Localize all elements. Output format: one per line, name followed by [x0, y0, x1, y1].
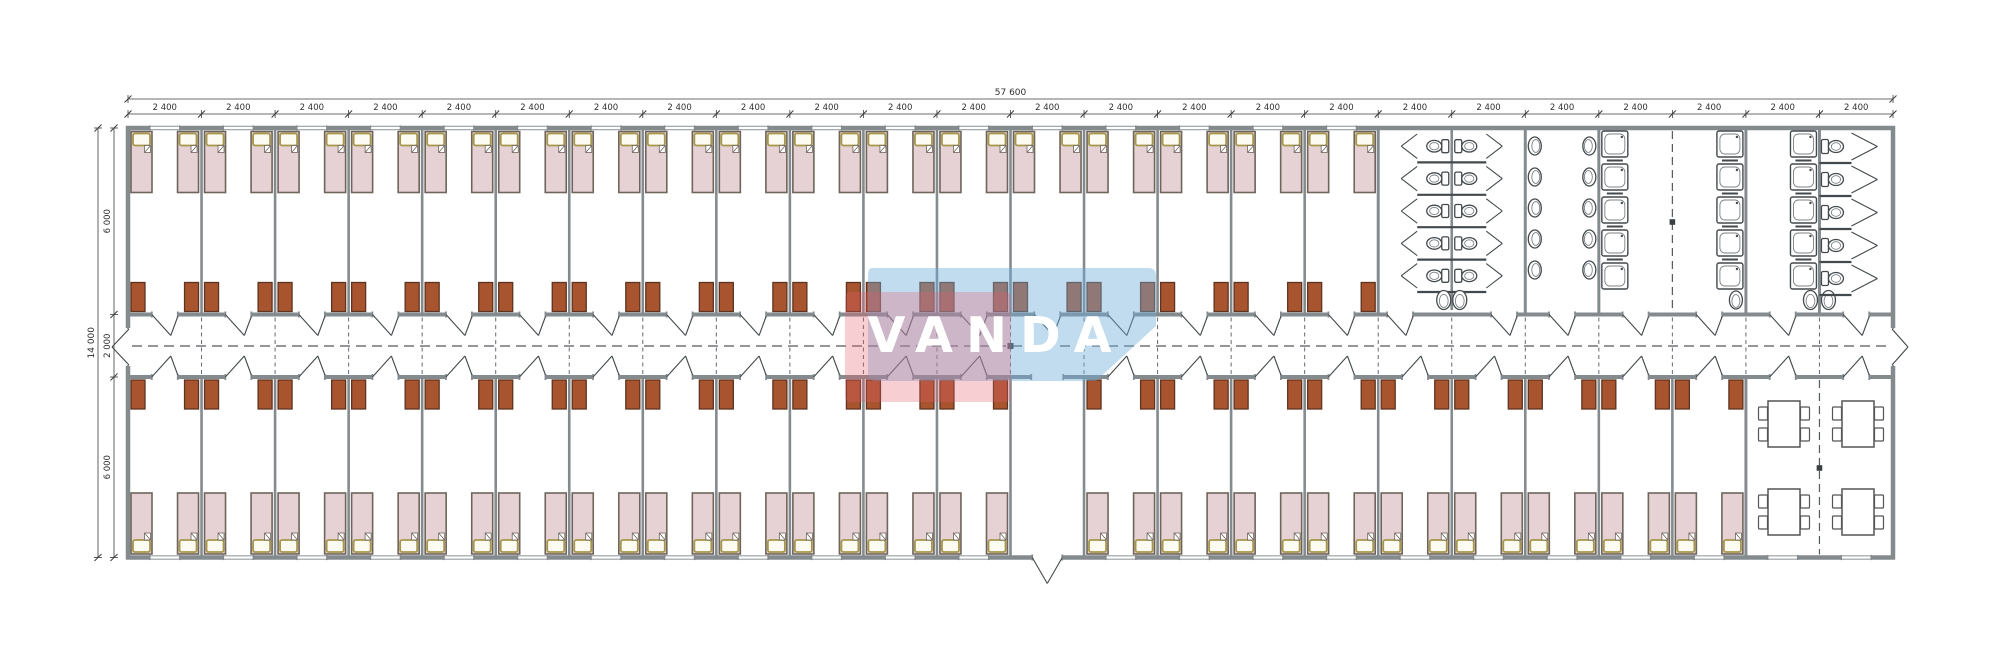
door-opening: [1181, 312, 1207, 317]
door-opening: [593, 312, 619, 317]
door-opening: [814, 374, 840, 379]
wardrobe: [646, 283, 660, 312]
chair: [1759, 516, 1768, 529]
pillow: [1163, 540, 1180, 552]
toilet-bowl-inner: [1831, 242, 1840, 250]
door-swing: [1862, 317, 1869, 336]
door-opening: [667, 312, 693, 317]
pillow: [1650, 540, 1667, 552]
chair: [1801, 516, 1810, 529]
dimension-label-bay: 2 400: [1035, 103, 1059, 113]
door-swing: [1510, 317, 1517, 336]
wc-stall-door: [1401, 134, 1417, 146]
shower-tray: [1717, 197, 1743, 223]
shower-tray: [1602, 164, 1628, 190]
pillow: [547, 540, 564, 552]
toilet-cistern: [1455, 269, 1462, 282]
pillow: [721, 134, 738, 146]
chair: [1875, 428, 1884, 441]
pillow: [501, 540, 518, 552]
entrance-door-swing: [1047, 558, 1062, 584]
door-swing: [1789, 356, 1796, 375]
door-opening: [1387, 312, 1413, 317]
door-opening: [1623, 374, 1649, 379]
pillow: [400, 134, 417, 146]
pillow: [354, 134, 371, 146]
pillow: [1604, 540, 1621, 552]
door-swing: [1843, 356, 1862, 377]
door-swing: [740, 315, 759, 336]
shower-tray: [1602, 131, 1628, 157]
pillow: [942, 134, 959, 146]
wardrobe: [1087, 380, 1101, 409]
door-opening: [1696, 374, 1722, 379]
wardrobe: [699, 283, 713, 312]
wash-basin-inner: [1584, 171, 1592, 184]
toilet-cistern: [1455, 140, 1462, 153]
pillow: [474, 540, 491, 552]
chair: [1801, 407, 1810, 420]
door-swing: [244, 356, 251, 375]
door-opening: [225, 374, 251, 379]
door-swing: [1770, 315, 1789, 336]
pillow: [474, 134, 491, 146]
chair: [1833, 407, 1842, 420]
pillow: [621, 540, 638, 552]
pillow: [501, 134, 518, 146]
pillow: [327, 134, 344, 146]
wardrobe: [1361, 283, 1375, 312]
door-opening: [1328, 312, 1354, 317]
wardrobe: [1602, 380, 1616, 409]
pillow: [648, 540, 665, 552]
door-opening: [1843, 312, 1869, 317]
pillow: [989, 540, 1006, 552]
entrance-opening: [1032, 555, 1062, 560]
pillow: [547, 134, 564, 146]
dimension-label-total-width: 57 600: [995, 88, 1027, 98]
entrance-door-swing: [1032, 558, 1047, 584]
wc-stall-door: [1401, 179, 1417, 191]
pillow: [133, 540, 150, 552]
door-swing: [1642, 356, 1649, 375]
pillow: [1356, 540, 1373, 552]
dimension-label-bay: 2 400: [520, 103, 544, 113]
door-swing: [244, 317, 251, 336]
wardrobe: [1234, 380, 1248, 409]
door-opening: [1476, 374, 1502, 379]
wardrobe: [332, 380, 346, 409]
door-swing: [1274, 317, 1281, 336]
wc-stall-door: [1486, 179, 1502, 191]
toilet-bowl-inner: [1465, 175, 1474, 182]
door-swing: [1347, 356, 1354, 375]
door-swing: [446, 356, 465, 377]
toilet-bowl-inner: [1465, 240, 1474, 247]
shower-drain: [1621, 202, 1623, 204]
door-opening: [1328, 374, 1354, 379]
shower-tray: [1717, 263, 1743, 289]
door-opening: [1843, 374, 1869, 379]
toilet-cistern: [1455, 172, 1462, 185]
wash-basin-inner: [1584, 140, 1592, 153]
pillow: [621, 134, 638, 146]
shower-drain: [1736, 169, 1738, 171]
dimension-label-bay: 2 400: [226, 103, 250, 113]
wc-stall-door: [1401, 199, 1417, 211]
pillow: [721, 540, 738, 552]
door-swing: [538, 317, 545, 336]
door-swing: [1623, 315, 1642, 336]
door-swing: [519, 356, 538, 377]
door-swing: [1406, 317, 1413, 336]
door-swing: [1328, 315, 1347, 336]
toilet-bowl-inner: [1831, 275, 1840, 283]
door-swing: [1200, 356, 1207, 375]
toilet-bowl-inner: [1430, 240, 1439, 247]
door-swing: [1491, 315, 1510, 336]
pillow: [989, 134, 1006, 146]
door-swing: [1328, 356, 1347, 377]
door-swing: [1495, 356, 1502, 375]
door-swing: [686, 317, 693, 336]
door-opening: [1491, 312, 1517, 317]
dimension-label-bay: 2 400: [447, 103, 471, 113]
shower-tray: [1790, 230, 1816, 256]
door-swing: [391, 317, 398, 336]
shower-drain: [1621, 268, 1623, 270]
door-swing: [152, 356, 171, 377]
floor-plan-page: 57 6002 4002 4002 4002 4002 4002 4002 40…: [0, 0, 2000, 654]
axis-node: [1817, 465, 1823, 471]
wardrobe: [1508, 380, 1522, 409]
dimension-label-bay: 2 400: [1476, 103, 1500, 113]
toilet-cistern: [1442, 237, 1449, 250]
pillow: [1236, 134, 1253, 146]
wc-stall-door: [1401, 146, 1417, 158]
pillow: [1530, 540, 1547, 552]
wc-stall-door: [1486, 211, 1502, 223]
chair: [1875, 407, 1884, 420]
door-swing: [152, 315, 171, 336]
door-opening: [593, 374, 619, 379]
door-swing: [1181, 356, 1200, 377]
shower-tray: [1602, 230, 1628, 256]
shower-drain: [1621, 136, 1623, 138]
dimension-label-bay: 2 400: [1182, 103, 1206, 113]
dining-table: [1842, 401, 1874, 447]
door-opening: [1255, 312, 1281, 317]
door-opening: [667, 374, 693, 379]
shower-drain: [1809, 169, 1811, 171]
pillow: [1503, 540, 1520, 552]
door-swing: [225, 315, 244, 336]
wash-basin-inner: [1439, 294, 1448, 307]
dimension-label-bay: 2 400: [1844, 103, 1868, 113]
wardrobe: [1361, 380, 1375, 409]
pillow: [1383, 540, 1400, 552]
wc-stall-door: [1851, 199, 1877, 213]
toilet-bowl-inner: [1465, 272, 1474, 279]
door-swing: [1789, 317, 1796, 336]
door-swing: [612, 317, 619, 336]
pillow: [280, 540, 297, 552]
dining-table: [1768, 401, 1800, 447]
door-swing: [1770, 356, 1789, 377]
toilet-cistern: [1442, 269, 1449, 282]
wardrobe: [405, 283, 419, 312]
wardrobe: [185, 380, 199, 409]
pillow: [280, 134, 297, 146]
shower-drain: [1809, 268, 1811, 270]
wardrobe: [131, 283, 145, 312]
east-door-opening: [1890, 328, 1895, 366]
wardrobe: [572, 380, 586, 409]
pillow: [253, 134, 270, 146]
wash-basin-inner: [1532, 202, 1540, 215]
wardrobe: [185, 283, 199, 312]
pillow: [1209, 134, 1226, 146]
wardrobe: [552, 380, 566, 409]
pillow: [1577, 540, 1594, 552]
wardrobe: [1675, 380, 1689, 409]
chair: [1833, 516, 1842, 529]
wardrobe: [278, 283, 292, 312]
toilet-cistern: [1821, 272, 1828, 286]
wardrobe: [1288, 380, 1302, 409]
pillow: [915, 540, 932, 552]
door-swing: [814, 315, 833, 336]
door-swing: [759, 317, 766, 336]
pillow: [841, 540, 858, 552]
toilet-cistern: [1821, 140, 1828, 154]
wardrobe: [1214, 283, 1228, 312]
wc-stall-door: [1486, 134, 1502, 146]
door-swing: [465, 356, 472, 375]
pillow: [180, 540, 197, 552]
door-swing: [391, 356, 398, 375]
chair: [1759, 428, 1768, 441]
wc-stall-door: [1486, 243, 1502, 255]
door-opening: [1549, 312, 1575, 317]
wc-stall-door: [1851, 232, 1877, 246]
shower-drain: [1736, 235, 1738, 237]
toilet-bowl-inner: [1831, 176, 1840, 184]
door-opening: [1770, 312, 1796, 317]
dimension-label-segment: 6 000: [103, 455, 113, 479]
chair: [1801, 428, 1810, 441]
door-swing: [1402, 356, 1421, 377]
pillow: [1163, 134, 1180, 146]
wc-stall-door: [1851, 166, 1877, 180]
door-swing: [171, 317, 178, 336]
pillow: [207, 134, 224, 146]
pillow: [1310, 134, 1327, 146]
door-swing: [1127, 356, 1134, 375]
wc-stall-door: [1851, 246, 1877, 260]
door-swing: [299, 315, 318, 336]
dimension-label-bay: 2 400: [373, 103, 397, 113]
wash-basin-inner: [1584, 264, 1592, 277]
wardrobe: [719, 283, 733, 312]
door-swing: [833, 356, 840, 375]
pillow: [1283, 540, 1300, 552]
pillow: [795, 134, 812, 146]
pillow: [1209, 540, 1226, 552]
toilet-cistern: [1442, 172, 1449, 185]
door-swing: [299, 356, 318, 377]
door-swing: [446, 315, 465, 336]
wash-basin-inner: [1732, 295, 1740, 308]
wardrobe: [646, 380, 660, 409]
wc-stall-door: [1486, 264, 1502, 276]
wardrobe: [793, 380, 807, 409]
door-swing: [1715, 317, 1722, 336]
door-opening: [1108, 374, 1134, 379]
toilet-bowl-inner: [1465, 143, 1474, 150]
dimension-label-bay: 2 400: [1697, 103, 1721, 113]
wardrobe: [1161, 380, 1175, 409]
wardrobe: [332, 283, 346, 312]
wardrobe: [1381, 380, 1395, 409]
pillow: [1236, 540, 1253, 552]
wc-stall-door: [1401, 276, 1417, 288]
wardrobe: [1308, 283, 1322, 312]
watermark-text: VANDA: [867, 307, 1124, 364]
wardrobe: [719, 380, 733, 409]
door-opening: [1623, 312, 1649, 317]
dimension-label-bay: 2 400: [1329, 103, 1353, 113]
pillow: [1356, 134, 1373, 146]
wc-stall-door: [1851, 279, 1877, 293]
door-swing: [667, 356, 686, 377]
wash-basin-inner: [1806, 294, 1815, 307]
pillow: [574, 540, 591, 552]
shower-drain: [1809, 136, 1811, 138]
dimension-label-bay: 2 400: [667, 103, 691, 113]
door-opening: [1696, 312, 1722, 317]
wardrobe: [1161, 283, 1175, 312]
wc-stall-door: [1486, 166, 1502, 178]
pillow: [1677, 540, 1694, 552]
shower-drain: [1621, 235, 1623, 237]
shower-tray: [1602, 197, 1628, 223]
shower-tray: [1790, 131, 1816, 157]
door-opening: [1181, 374, 1207, 379]
dimension-label-segment: 6 000: [103, 209, 113, 233]
door-swing: [1181, 315, 1200, 336]
wc-stall-door: [1486, 199, 1502, 211]
wardrobe: [1435, 380, 1449, 409]
wardrobe: [479, 283, 493, 312]
door-swing: [171, 356, 178, 375]
pillow: [427, 134, 444, 146]
toilet-bowl-inner: [1831, 143, 1840, 151]
wardrobe: [499, 283, 513, 312]
pillow: [841, 134, 858, 146]
wc-stall-door: [1401, 264, 1417, 276]
toilet-cistern: [1442, 140, 1449, 153]
wc-stall-door: [1851, 213, 1877, 227]
pillow: [427, 540, 444, 552]
door-swing: [1255, 356, 1274, 377]
pillow: [1457, 540, 1474, 552]
pillow: [1016, 134, 1033, 146]
door-swing: [740, 356, 759, 377]
wardrobe: [1308, 380, 1322, 409]
pillow: [868, 540, 885, 552]
wardrobe: [699, 380, 713, 409]
dining-table: [1842, 489, 1874, 535]
wardrobe: [572, 283, 586, 312]
pillow: [1089, 134, 1106, 146]
shower-drain: [1621, 169, 1623, 171]
pillow: [327, 540, 344, 552]
door-swing: [1200, 317, 1207, 336]
chair: [1875, 495, 1884, 508]
door-swing: [814, 356, 833, 377]
door-swing: [1347, 317, 1354, 336]
toilet-bowl-inner: [1430, 272, 1439, 279]
wardrobe: [352, 283, 366, 312]
chair: [1833, 428, 1842, 441]
wash-basin-inner: [1532, 264, 1540, 277]
shower-tray: [1790, 263, 1816, 289]
chair: [1875, 516, 1884, 529]
shower-tray: [1602, 263, 1628, 289]
wardrobe: [205, 283, 219, 312]
door-swing: [372, 315, 391, 336]
shower-tray: [1790, 164, 1816, 190]
wc-stall-door: [1851, 265, 1877, 279]
toilet-bowl-inner: [1831, 209, 1840, 217]
dimension-label-bay: 2 400: [741, 103, 765, 113]
dining-table: [1768, 489, 1800, 535]
pillow: [1430, 540, 1447, 552]
door-swing: [519, 315, 538, 336]
door-opening: [152, 312, 178, 317]
pillow: [574, 134, 591, 146]
wash-basin-inner: [1584, 202, 1592, 215]
wardrobe: [405, 380, 419, 409]
shower-drain: [1736, 268, 1738, 270]
door-swing: [1421, 356, 1428, 375]
toilet-cistern: [1455, 237, 1462, 250]
toilet-cistern: [1442, 205, 1449, 218]
door-swing: [1549, 356, 1568, 377]
shower-drain: [1809, 202, 1811, 204]
door-opening: [372, 374, 398, 379]
dimension-label-bay: 2 400: [300, 103, 324, 113]
door-swing: [1642, 317, 1649, 336]
door-swing: [1862, 356, 1869, 375]
door-swing: [318, 356, 325, 375]
door-swing: [1696, 315, 1715, 336]
door-opening: [446, 374, 472, 379]
wardrobe: [1288, 283, 1302, 312]
door-swing: [1696, 356, 1715, 377]
door-swing: [1568, 317, 1575, 336]
dimension-label-bay: 2 400: [1550, 103, 1574, 113]
wardrobe: [258, 380, 272, 409]
door-swing: [318, 317, 325, 336]
wardrobe: [278, 380, 292, 409]
shower-tray: [1717, 131, 1743, 157]
wash-basin-inner: [1584, 233, 1592, 246]
wardrobe: [773, 380, 787, 409]
dimension-label-bay: 2 400: [814, 103, 838, 113]
wc-stall-door: [1401, 243, 1417, 255]
